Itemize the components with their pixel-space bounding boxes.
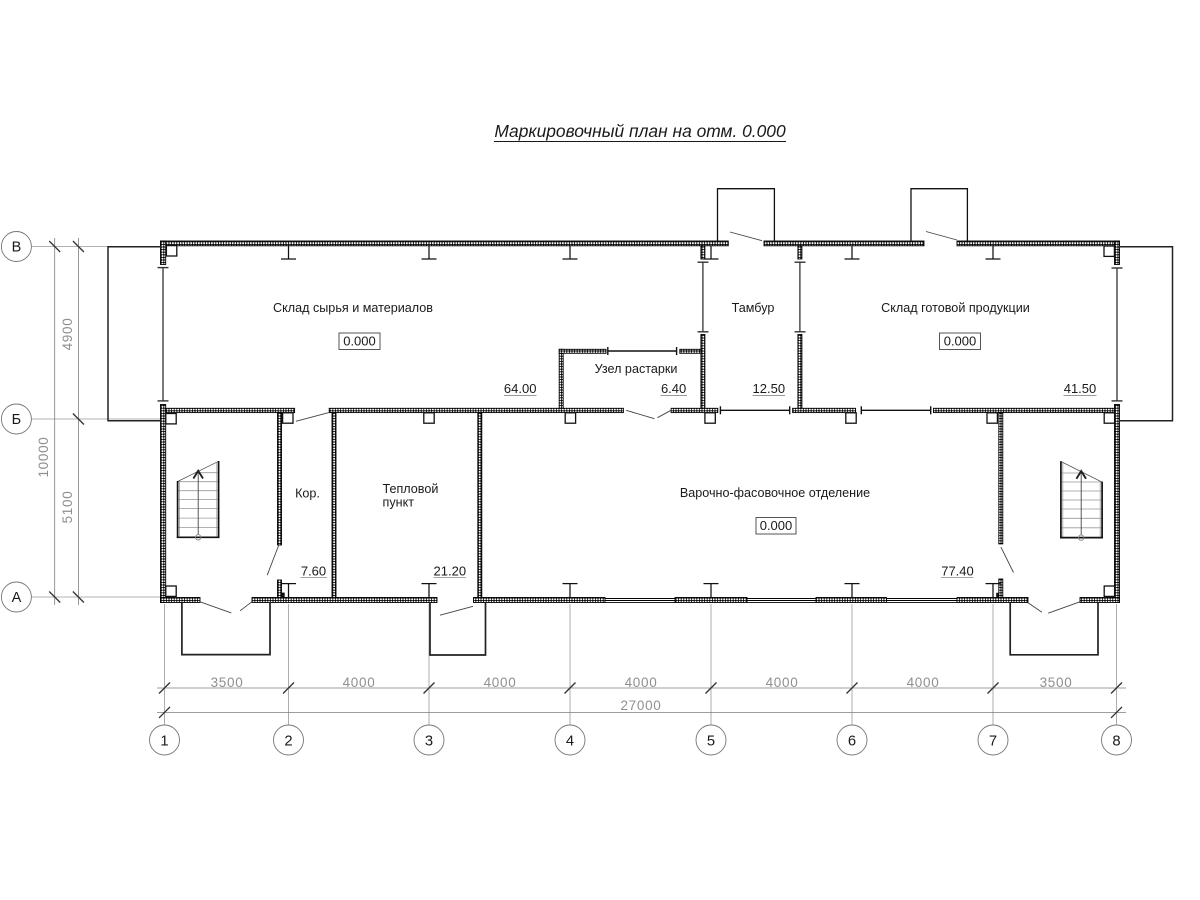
svg-text:77.40: 77.40 xyxy=(941,563,974,578)
svg-text:А: А xyxy=(12,590,22,606)
svg-text:Склад готовой продукции: Склад готовой продукции xyxy=(881,301,1030,315)
svg-text:0.000: 0.000 xyxy=(760,518,793,533)
svg-text:3500: 3500 xyxy=(1040,675,1073,690)
svg-text:3500: 3500 xyxy=(211,675,244,690)
svg-text:Тамбур: Тамбур xyxy=(732,301,775,315)
svg-text:12.50: 12.50 xyxy=(753,381,786,396)
svg-text:4000: 4000 xyxy=(625,675,658,690)
svg-text:8: 8 xyxy=(1112,734,1120,750)
svg-text:пункт: пункт xyxy=(383,496,415,510)
svg-text:5: 5 xyxy=(707,734,715,750)
svg-text:0.000: 0.000 xyxy=(343,334,376,349)
svg-text:Маркировочный план на отм. 0.0: Маркировочный план на отм. 0.000 xyxy=(494,121,786,141)
svg-text:Б: Б xyxy=(12,412,22,428)
svg-text:1: 1 xyxy=(160,734,168,750)
svg-text:4000: 4000 xyxy=(907,675,940,690)
svg-text:41.50: 41.50 xyxy=(1064,381,1097,396)
svg-text:21.20: 21.20 xyxy=(434,563,467,578)
svg-text:64.00: 64.00 xyxy=(504,381,537,396)
svg-text:Варочно-фасовочное отделение: Варочно-фасовочное отделение xyxy=(680,486,870,500)
svg-text:Кор.: Кор. xyxy=(295,487,320,501)
svg-text:4: 4 xyxy=(566,734,574,750)
svg-text:3: 3 xyxy=(425,734,433,750)
svg-text:Склад сырья и материалов: Склад сырья и материалов xyxy=(273,301,433,315)
svg-text:5100: 5100 xyxy=(60,491,75,524)
svg-text:4000: 4000 xyxy=(343,675,376,690)
svg-text:10000: 10000 xyxy=(36,436,51,477)
svg-text:7: 7 xyxy=(989,734,997,750)
svg-text:6.40: 6.40 xyxy=(661,381,686,396)
svg-text:7.60: 7.60 xyxy=(301,563,326,578)
svg-text:Узел растарки: Узел растарки xyxy=(595,362,678,376)
svg-text:27000: 27000 xyxy=(620,698,661,713)
svg-text:4000: 4000 xyxy=(484,675,517,690)
svg-text:4900: 4900 xyxy=(60,318,75,351)
svg-text:4000: 4000 xyxy=(766,675,799,690)
svg-text:6: 6 xyxy=(848,734,856,750)
svg-text:Тепловой: Тепловой xyxy=(383,482,439,496)
svg-text:2: 2 xyxy=(284,734,292,750)
svg-text:0.000: 0.000 xyxy=(944,334,977,349)
svg-text:В: В xyxy=(12,240,22,256)
